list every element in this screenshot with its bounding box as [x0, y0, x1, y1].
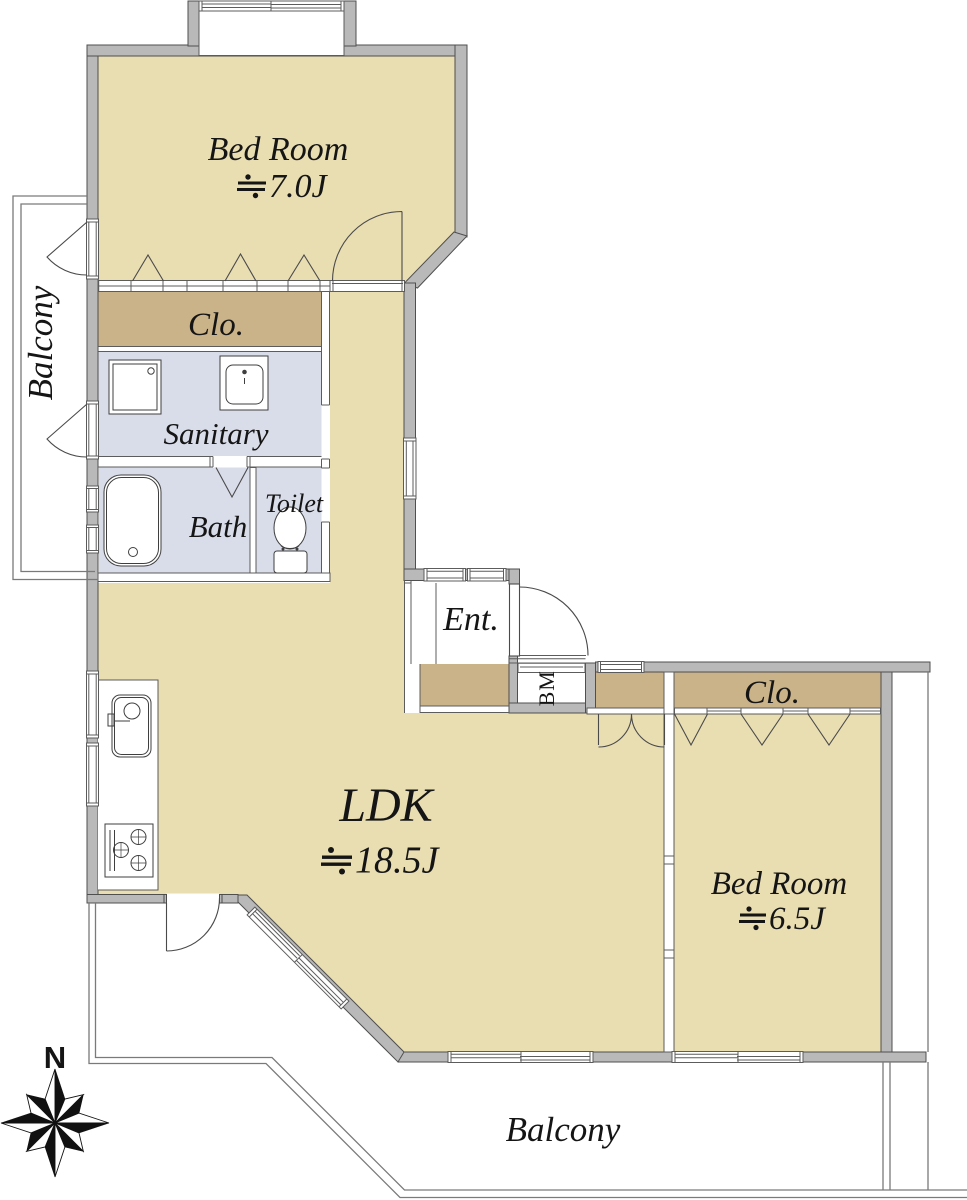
- svg-text:Toilet: Toilet: [265, 489, 324, 518]
- svg-text:6.5J: 6.5J: [769, 901, 826, 937]
- svg-text:Ent.: Ent.: [442, 601, 499, 638]
- svg-text:Bed Room: Bed Room: [208, 131, 349, 168]
- svg-text:Clo.: Clo.: [188, 307, 244, 343]
- svg-text:M: M: [534, 671, 559, 691]
- svg-text:Balcony: Balcony: [21, 285, 60, 400]
- svg-text:Bed Room: Bed Room: [711, 866, 848, 902]
- svg-text:18.5J: 18.5J: [355, 840, 441, 882]
- svg-text:LDK: LDK: [338, 779, 435, 832]
- svg-text:B: B: [534, 692, 559, 707]
- svg-text:7.0J: 7.0J: [269, 168, 329, 205]
- svg-text:Sanitary: Sanitary: [163, 416, 268, 451]
- svg-text:Balcony: Balcony: [506, 1110, 621, 1149]
- svg-text:Bath: Bath: [189, 509, 248, 544]
- svg-text:Clo.: Clo.: [744, 675, 800, 711]
